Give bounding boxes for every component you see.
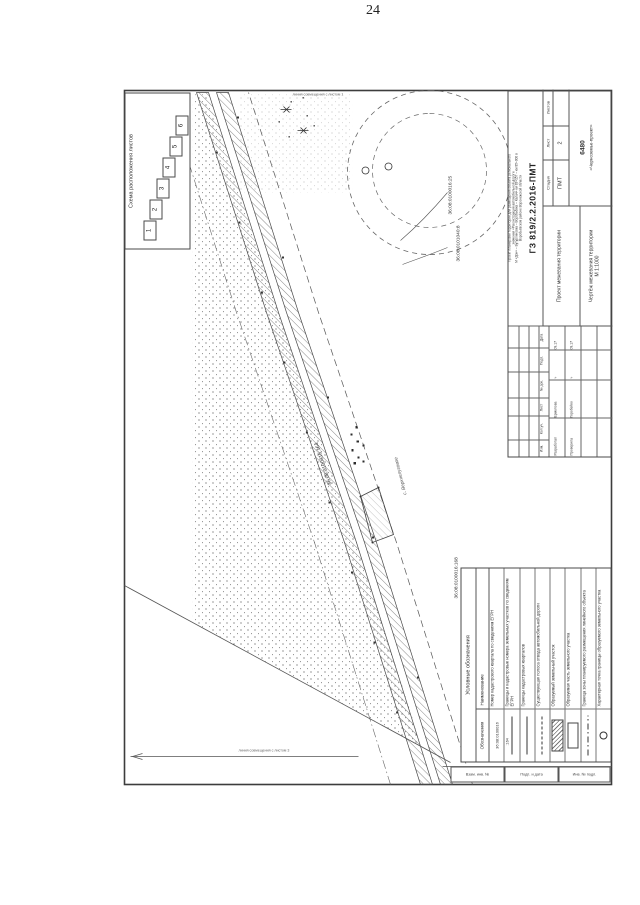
sheet-number: 2 bbox=[554, 127, 569, 160]
parcel-vertex bbox=[360, 496, 362, 498]
survey-cluster bbox=[351, 426, 365, 465]
org-name: «Черноземье-проект» bbox=[587, 90, 594, 206]
legend-symbol-cell bbox=[520, 709, 534, 762]
object-description: Проект планировки территории для размеще… bbox=[509, 90, 523, 327]
legend-col-symbol: Обозначения bbox=[477, 709, 489, 762]
signature-date: 09.17 bbox=[554, 328, 558, 350]
legend-name: Границы кадастровых кварталов bbox=[520, 569, 534, 709]
doc-code: ГЗ 819/2.2.2016-ПМТ bbox=[523, 90, 543, 327]
quarter-label: 36:08:0100016:168 bbox=[454, 557, 460, 599]
stage-label: Стадия bbox=[544, 161, 553, 206]
legend-name: Существующая полоса отвода автомобильной… bbox=[535, 569, 549, 709]
signature-name: Ермолова bbox=[554, 382, 558, 418]
signature-role: Проверила bbox=[570, 420, 574, 456]
revision-header: Лист bbox=[540, 399, 544, 417]
legend-row: Образуемая часть земельного участка bbox=[566, 569, 581, 762]
legend-row: Граница зоны планируемого размещения лин… bbox=[581, 569, 596, 762]
legend-name: Характерная точка границы образуемого зе… bbox=[596, 569, 610, 709]
legend-symbol-solid-line bbox=[527, 717, 528, 755]
match-line-label-left: линия совмещения с листом 3 bbox=[239, 749, 290, 753]
match-line-label-right: линия совмещения с листом 1 bbox=[293, 93, 344, 97]
sheet-scheme-title: Схема расположения листов bbox=[129, 94, 135, 249]
scanned-page: 24 bbox=[0, 0, 640, 905]
revision-header: Кол.уч. bbox=[540, 417, 544, 441]
legend-name: Граница зоны планируемого размещения лин… bbox=[581, 569, 595, 709]
signature-date: 09.17 bbox=[570, 328, 574, 350]
leader-line-1 bbox=[401, 193, 448, 241]
scheme-sheet-1: 1 bbox=[144, 221, 157, 241]
legend-table: Условные обозначения Обозначения Наимено… bbox=[461, 568, 612, 763]
legend-symbol-cell bbox=[596, 709, 610, 762]
dashed-circle-inner bbox=[373, 114, 487, 228]
legend-symbol-circle bbox=[599, 732, 607, 740]
revision-header: Изм. bbox=[540, 441, 544, 457]
legend-name: Образуемая часть земельного участка bbox=[566, 569, 580, 709]
leader-line-2 bbox=[403, 248, 448, 265]
legend-symbol-cell: 36:08:0100016 bbox=[490, 709, 504, 762]
legend-row: Образуемый земельный участок bbox=[551, 569, 566, 762]
legend-symbol-cell bbox=[535, 709, 549, 762]
signature-sign: ∿ bbox=[570, 352, 574, 380]
revision-header: Дата bbox=[540, 327, 544, 349]
margin-cell-label: Взам. инв. № bbox=[466, 773, 490, 777]
legend-row: Характерная точка границы образуемого зе… bbox=[596, 569, 610, 762]
drawing-sheet: 36:08:0100016:164 36:08:0100016:25 36:08… bbox=[121, 83, 616, 793]
settlement-label: с. Верхнелуговое bbox=[393, 456, 408, 495]
scheme-sheet-3: 3 bbox=[156, 179, 169, 199]
legend-symbol-cell bbox=[566, 709, 580, 762]
legend-symbol-cell bbox=[551, 709, 565, 762]
scheme-sheet-6: 6 bbox=[176, 116, 189, 136]
scheme-sheet-4: 4 bbox=[163, 158, 176, 178]
scheme-sheet-2: 2 bbox=[150, 200, 163, 220]
legend-name: Границы и кадастровые номера земельных у… bbox=[505, 569, 519, 709]
legend-symbol-rect bbox=[567, 723, 578, 749]
margin-cell: Подп. и дата bbox=[505, 767, 559, 783]
dashed-circle-outer bbox=[348, 91, 512, 255]
scheme-sheet-5: 5 bbox=[169, 137, 182, 157]
signature-name: Горобейко bbox=[570, 382, 574, 418]
legend-symbol-dash-dot-line bbox=[588, 716, 589, 756]
title-block: Изм.Кол.уч.Лист№ док.Подп.Дата Разработа… bbox=[508, 91, 612, 458]
stage-value: ПМТ bbox=[554, 161, 569, 206]
legend-row: 36:08:0100016Номер кадастрового квартала… bbox=[490, 569, 505, 762]
signature-role: Разработал bbox=[554, 420, 558, 456]
legend-symbol-hatched-rect bbox=[552, 720, 564, 752]
legend-row: :164Границы и кадастровые номера земельн… bbox=[505, 569, 520, 762]
sheet-scale: М 1:1000 bbox=[595, 207, 601, 326]
margin-cell: Взам. инв. № bbox=[451, 767, 505, 783]
parcel-vertex bbox=[372, 542, 374, 544]
sheet-scheme-box: Схема расположения листов 123456 bbox=[125, 93, 191, 250]
legend-header: Обозначения Наименование bbox=[477, 569, 490, 762]
margin-cell-label: Инв. № подл. bbox=[573, 773, 597, 777]
parcel-label-2: 36:08:0101040:8 bbox=[456, 225, 462, 261]
revision-header: № док. bbox=[540, 373, 544, 399]
sheets-label: Листов bbox=[544, 90, 553, 126]
point-circle-2 bbox=[385, 163, 392, 170]
revision-header: Подп. bbox=[540, 349, 544, 373]
legend-name: Номер кадастрового квартала по сведениям… bbox=[490, 569, 504, 709]
parcel-vertex bbox=[378, 487, 380, 489]
signature-sign: ∿ bbox=[554, 352, 558, 380]
sheet-label: Лист bbox=[544, 127, 553, 160]
parcel-label-1: 36:08:0100016:25 bbox=[448, 175, 454, 214]
stipple-area-sparse bbox=[241, 95, 353, 193]
margin-cell: Инв. № подл. bbox=[559, 767, 611, 783]
legend-symbol-cell: :164 bbox=[505, 709, 519, 762]
legend-symbol-line-number: :164 bbox=[511, 717, 512, 755]
legend-col-name: Наименование bbox=[477, 569, 489, 709]
page-number: 24 bbox=[366, 3, 380, 19]
org-code: 6480 bbox=[570, 90, 587, 206]
point-circle-1 bbox=[362, 167, 369, 174]
revision-grid: Изм.Кол.уч.Лист№ док.Подп.Дата Разработа… bbox=[509, 327, 613, 457]
project-title: Проект межевания территории bbox=[544, 207, 563, 326]
margin-cell-label: Подп. и дата bbox=[520, 773, 542, 777]
legend-title: Условные обозначения bbox=[462, 569, 477, 762]
legend-rows: 36:08:0100016Номер кадастрового квартала… bbox=[490, 569, 611, 762]
legend-name: Образуемый земельный участок bbox=[551, 569, 565, 709]
legend-row: Существующая полоса отвода автомобильной… bbox=[535, 569, 550, 762]
legend-symbol-dashed-line bbox=[542, 717, 543, 755]
legend-row: Границы кадастровых кварталов bbox=[520, 569, 535, 762]
legend-symbol-cell bbox=[581, 709, 595, 762]
sheet-title: Чертёж межевания территории bbox=[581, 207, 595, 326]
legend-symbol-cadastral-number: 36:08:0100016 bbox=[494, 722, 499, 749]
